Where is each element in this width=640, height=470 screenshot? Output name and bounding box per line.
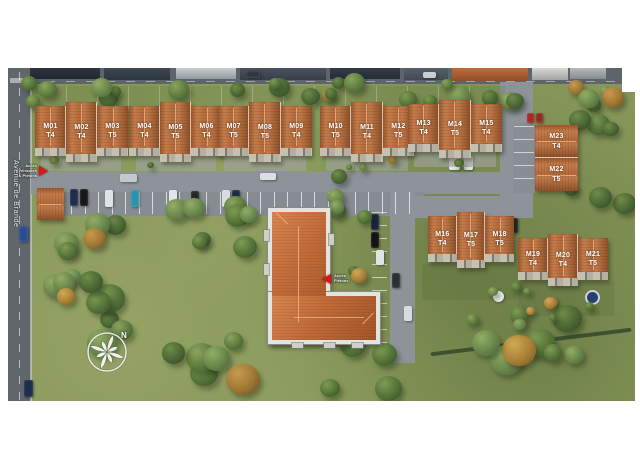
tree [38, 81, 57, 98]
house-M21: M21T5 [578, 238, 608, 280]
tree [589, 187, 612, 208]
street-dash [386, 81, 395, 83]
tree [585, 302, 595, 311]
street-dash [19, 376, 21, 384]
house-type-label: T5 [261, 132, 270, 141]
car [371, 214, 379, 230]
parking-line [372, 277, 387, 278]
house-type-label: T4 [552, 142, 561, 151]
house-id-label: M14 [448, 120, 462, 129]
roof-ridge [298, 226, 299, 322]
car [120, 174, 137, 182]
house-id-label: M18 [493, 230, 507, 239]
house-label: M10T5 [320, 106, 351, 156]
tree [49, 156, 58, 165]
car [404, 306, 412, 321]
house-M23: M23T4 [535, 125, 578, 158]
tree [526, 307, 534, 315]
house-M16: M16T4 [428, 216, 457, 262]
house-label: M05T5 [160, 102, 191, 162]
tree [91, 78, 112, 97]
tree [226, 364, 260, 395]
parking-line [514, 126, 534, 127]
house-label: M09T4 [281, 106, 312, 156]
house-id-label: M07 [227, 122, 241, 131]
parking-line [152, 192, 153, 214]
tree [203, 346, 230, 371]
street-dash [19, 344, 21, 352]
balcony [264, 230, 269, 241]
house-id-label: M02 [74, 123, 88, 132]
house-type-label: T5 [495, 239, 504, 248]
tree [147, 162, 154, 168]
street-name-label: Avenue de Brande [12, 160, 19, 280]
tree [224, 332, 243, 350]
house-label: M07T5 [218, 106, 249, 156]
house-type-label: T4 [140, 131, 149, 140]
car [423, 72, 436, 78]
roof-ridge [294, 317, 364, 318]
car [131, 190, 139, 207]
house-id-label: M03 [105, 122, 119, 131]
parking-line [206, 192, 207, 214]
tree [375, 376, 402, 401]
car [105, 190, 113, 207]
house-type-label: T4 [46, 131, 55, 140]
tree [58, 242, 78, 260]
street-dash [19, 136, 21, 144]
tree [613, 193, 635, 213]
tree [21, 76, 37, 91]
house-type-label: T5 [394, 131, 403, 140]
house-M09: M09T4 [281, 106, 312, 156]
house-label: M02T4 [66, 102, 97, 162]
car [527, 113, 534, 123]
parking-line [514, 152, 534, 153]
street-dash [19, 360, 21, 368]
parking-line [409, 192, 410, 214]
tree [472, 330, 500, 356]
garage [37, 188, 64, 220]
house-type-label: T4 [363, 132, 372, 141]
house-id-label: M12 [391, 122, 405, 131]
car [392, 273, 400, 288]
house-type-label: T5 [589, 259, 598, 268]
car [70, 189, 78, 206]
street-dash [126, 81, 135, 83]
house-id-label: M05 [168, 123, 182, 132]
garden-fence [221, 86, 222, 106]
parking-line [372, 290, 387, 291]
house-type-label: T4 [529, 259, 538, 268]
house-type-label: T5 [331, 131, 340, 140]
neighbour-roof [104, 68, 170, 80]
balcony [352, 343, 363, 348]
tree [110, 86, 121, 97]
house-label: M16T4 [428, 216, 457, 262]
m23-parking [513, 123, 535, 193]
neighbour-roof [452, 68, 528, 81]
house-M03: M03T5 [97, 106, 128, 156]
car [19, 226, 28, 242]
house-type-label: T4 [559, 260, 568, 269]
house-M07: M07T5 [218, 106, 249, 156]
tree [233, 236, 257, 258]
tree [372, 343, 397, 366]
tree [454, 159, 463, 168]
house-label: M11T4 [351, 102, 382, 162]
street-dash [19, 72, 21, 80]
house-id-label: M06 [199, 122, 213, 131]
house-type-label: T4 [438, 239, 447, 248]
street-dash [306, 81, 315, 83]
car [260, 173, 276, 180]
house-label: M18T5 [485, 216, 514, 262]
parking-line [395, 192, 396, 214]
street-dash [19, 120, 21, 128]
house-M17: M17T5 [457, 212, 486, 268]
tree [83, 228, 107, 250]
house-M18: M18T5 [485, 216, 514, 262]
street-dash [146, 81, 155, 83]
tree [346, 164, 352, 170]
street-dash [19, 312, 21, 320]
house-id-label: M21 [586, 250, 600, 259]
street-curb [30, 68, 32, 401]
house-id-label: M23 [549, 132, 563, 141]
car [246, 71, 260, 78]
house-label: M04T4 [129, 106, 160, 156]
parking-line [372, 212, 387, 213]
street-dash [66, 81, 75, 83]
house-M05: M05T5 [160, 102, 191, 162]
garden-fence [128, 86, 129, 106]
neighbour-roof [176, 68, 236, 79]
tree [162, 342, 185, 364]
tree [441, 79, 453, 90]
car [24, 380, 33, 397]
street-dash [19, 88, 21, 96]
house-label: M22T5 [535, 158, 578, 191]
house-type-label: T5 [467, 240, 476, 249]
access-arrow-icon [39, 166, 48, 176]
street-dash [546, 81, 555, 83]
house-M13: M13T4 [408, 104, 439, 152]
car [371, 232, 379, 248]
street-dash [19, 104, 21, 112]
street-dash [406, 81, 415, 83]
parking-line [355, 192, 356, 214]
house-M20: M20T4 [548, 234, 578, 286]
house-type-label: T4 [202, 131, 211, 140]
house-type-label: T5 [171, 132, 180, 141]
house-id-label: M20 [556, 251, 570, 260]
car [536, 113, 543, 123]
parking-line [125, 192, 126, 214]
house-id-label: M16 [435, 230, 449, 239]
tree [513, 319, 526, 331]
house-label: M14T5 [439, 100, 470, 158]
street-dash [186, 81, 195, 83]
parking-line [98, 192, 99, 214]
street-dash [19, 152, 21, 160]
street-dash [426, 81, 435, 83]
tree [502, 335, 536, 366]
tree [325, 88, 337, 99]
house-M11: M11T4 [351, 102, 382, 162]
parking-line [514, 139, 534, 140]
street-dash [19, 296, 21, 304]
access-marker-pedestrians-text: AccèsPiétons [334, 273, 358, 283]
house-label: M01T4 [35, 106, 66, 156]
tree [602, 87, 624, 107]
house-label: M08T5 [249, 102, 280, 162]
balcony [264, 264, 269, 275]
tree [331, 169, 347, 184]
tree [544, 344, 563, 361]
house-id-label: M11 [360, 123, 374, 132]
house-label: M17T5 [457, 212, 486, 268]
house-id-label: M08 [258, 123, 272, 132]
neighbour-roof [30, 68, 100, 79]
central-building-roof [272, 296, 376, 340]
house-id-label: M04 [137, 122, 151, 131]
house-label: M20T4 [548, 234, 578, 286]
house-M15: M15T4 [471, 104, 502, 152]
tree [269, 78, 281, 89]
house-id-label: M10 [329, 122, 343, 131]
tree [192, 235, 207, 248]
house-label: M15T4 [471, 104, 502, 152]
tree [320, 379, 340, 397]
photo-edge [622, 68, 635, 92]
tree [466, 314, 478, 325]
house-M19: M19T4 [518, 238, 548, 280]
balcony [324, 343, 335, 348]
tree [578, 89, 599, 108]
house-type-label: T4 [292, 131, 301, 140]
car [80, 189, 88, 206]
house-id-label: M13 [417, 119, 431, 128]
house-label: M23T4 [535, 125, 578, 158]
street-dash [366, 81, 375, 83]
tree [330, 200, 345, 214]
house-label: M19T4 [518, 238, 548, 280]
tree [183, 198, 205, 219]
house-M01: M01T4 [35, 106, 66, 156]
parking-line [514, 165, 534, 166]
house-M04: M04T4 [129, 106, 160, 156]
balcony [292, 343, 303, 348]
aerial-photo: M01T4M02T4M03T5M04T4M05T5M06T4M07T5M08T5… [8, 68, 635, 401]
site-plan-image: M01T4M02T4M03T5M04T4M05T5M06T4M07T5M08T5… [0, 0, 640, 470]
tree [86, 291, 111, 314]
house-label: M13T4 [408, 104, 439, 152]
tree [523, 288, 530, 295]
parking-line [382, 192, 383, 214]
house-label: M03T5 [97, 106, 128, 156]
house-M14: M14T5 [439, 100, 470, 158]
tree [564, 346, 584, 364]
street-dash [226, 81, 235, 83]
access-arrow-icon [322, 274, 331, 284]
house-id-label: M01 [43, 122, 57, 131]
street-dash [19, 392, 21, 400]
tree [168, 80, 190, 100]
tree [240, 206, 259, 223]
parking-line [514, 178, 534, 179]
balcony [329, 234, 334, 245]
house-id-label: M17 [464, 231, 478, 240]
house-type-label: T5 [229, 131, 238, 140]
neighbour-roof [570, 68, 606, 79]
street-dash [19, 280, 21, 288]
street-dash [586, 81, 595, 83]
house-M10: M10T5 [320, 106, 351, 156]
house-M08: M08T5 [249, 102, 280, 162]
house-type-label: T5 [451, 129, 460, 138]
house-id-label: M22 [549, 165, 563, 174]
house-type-label: T4 [482, 128, 491, 137]
house-type-label: T5 [552, 175, 561, 184]
house-id-label: M09 [289, 122, 303, 131]
house-M22: M22T5 [535, 158, 578, 191]
street-dash [19, 328, 21, 336]
house-label: M21T5 [578, 238, 608, 280]
house-id-label: M19 [526, 250, 540, 259]
tree [57, 288, 75, 304]
tree [603, 122, 619, 137]
street-dash [206, 81, 215, 83]
house-M02: M02T4 [66, 102, 97, 162]
compass-north-label: N [121, 331, 127, 340]
house-type-label: T4 [77, 132, 86, 141]
house-id-label: M15 [479, 119, 493, 128]
parking-line [260, 192, 261, 214]
house-type-label: T4 [419, 128, 428, 137]
neighbour-roof [532, 68, 568, 80]
parking-line [220, 192, 221, 214]
house-type-label: T5 [108, 131, 117, 140]
street-dash [246, 81, 255, 83]
street-dash [606, 81, 615, 83]
access-marker-line: Piétons [334, 278, 358, 283]
car [376, 250, 384, 265]
tree [301, 88, 319, 105]
